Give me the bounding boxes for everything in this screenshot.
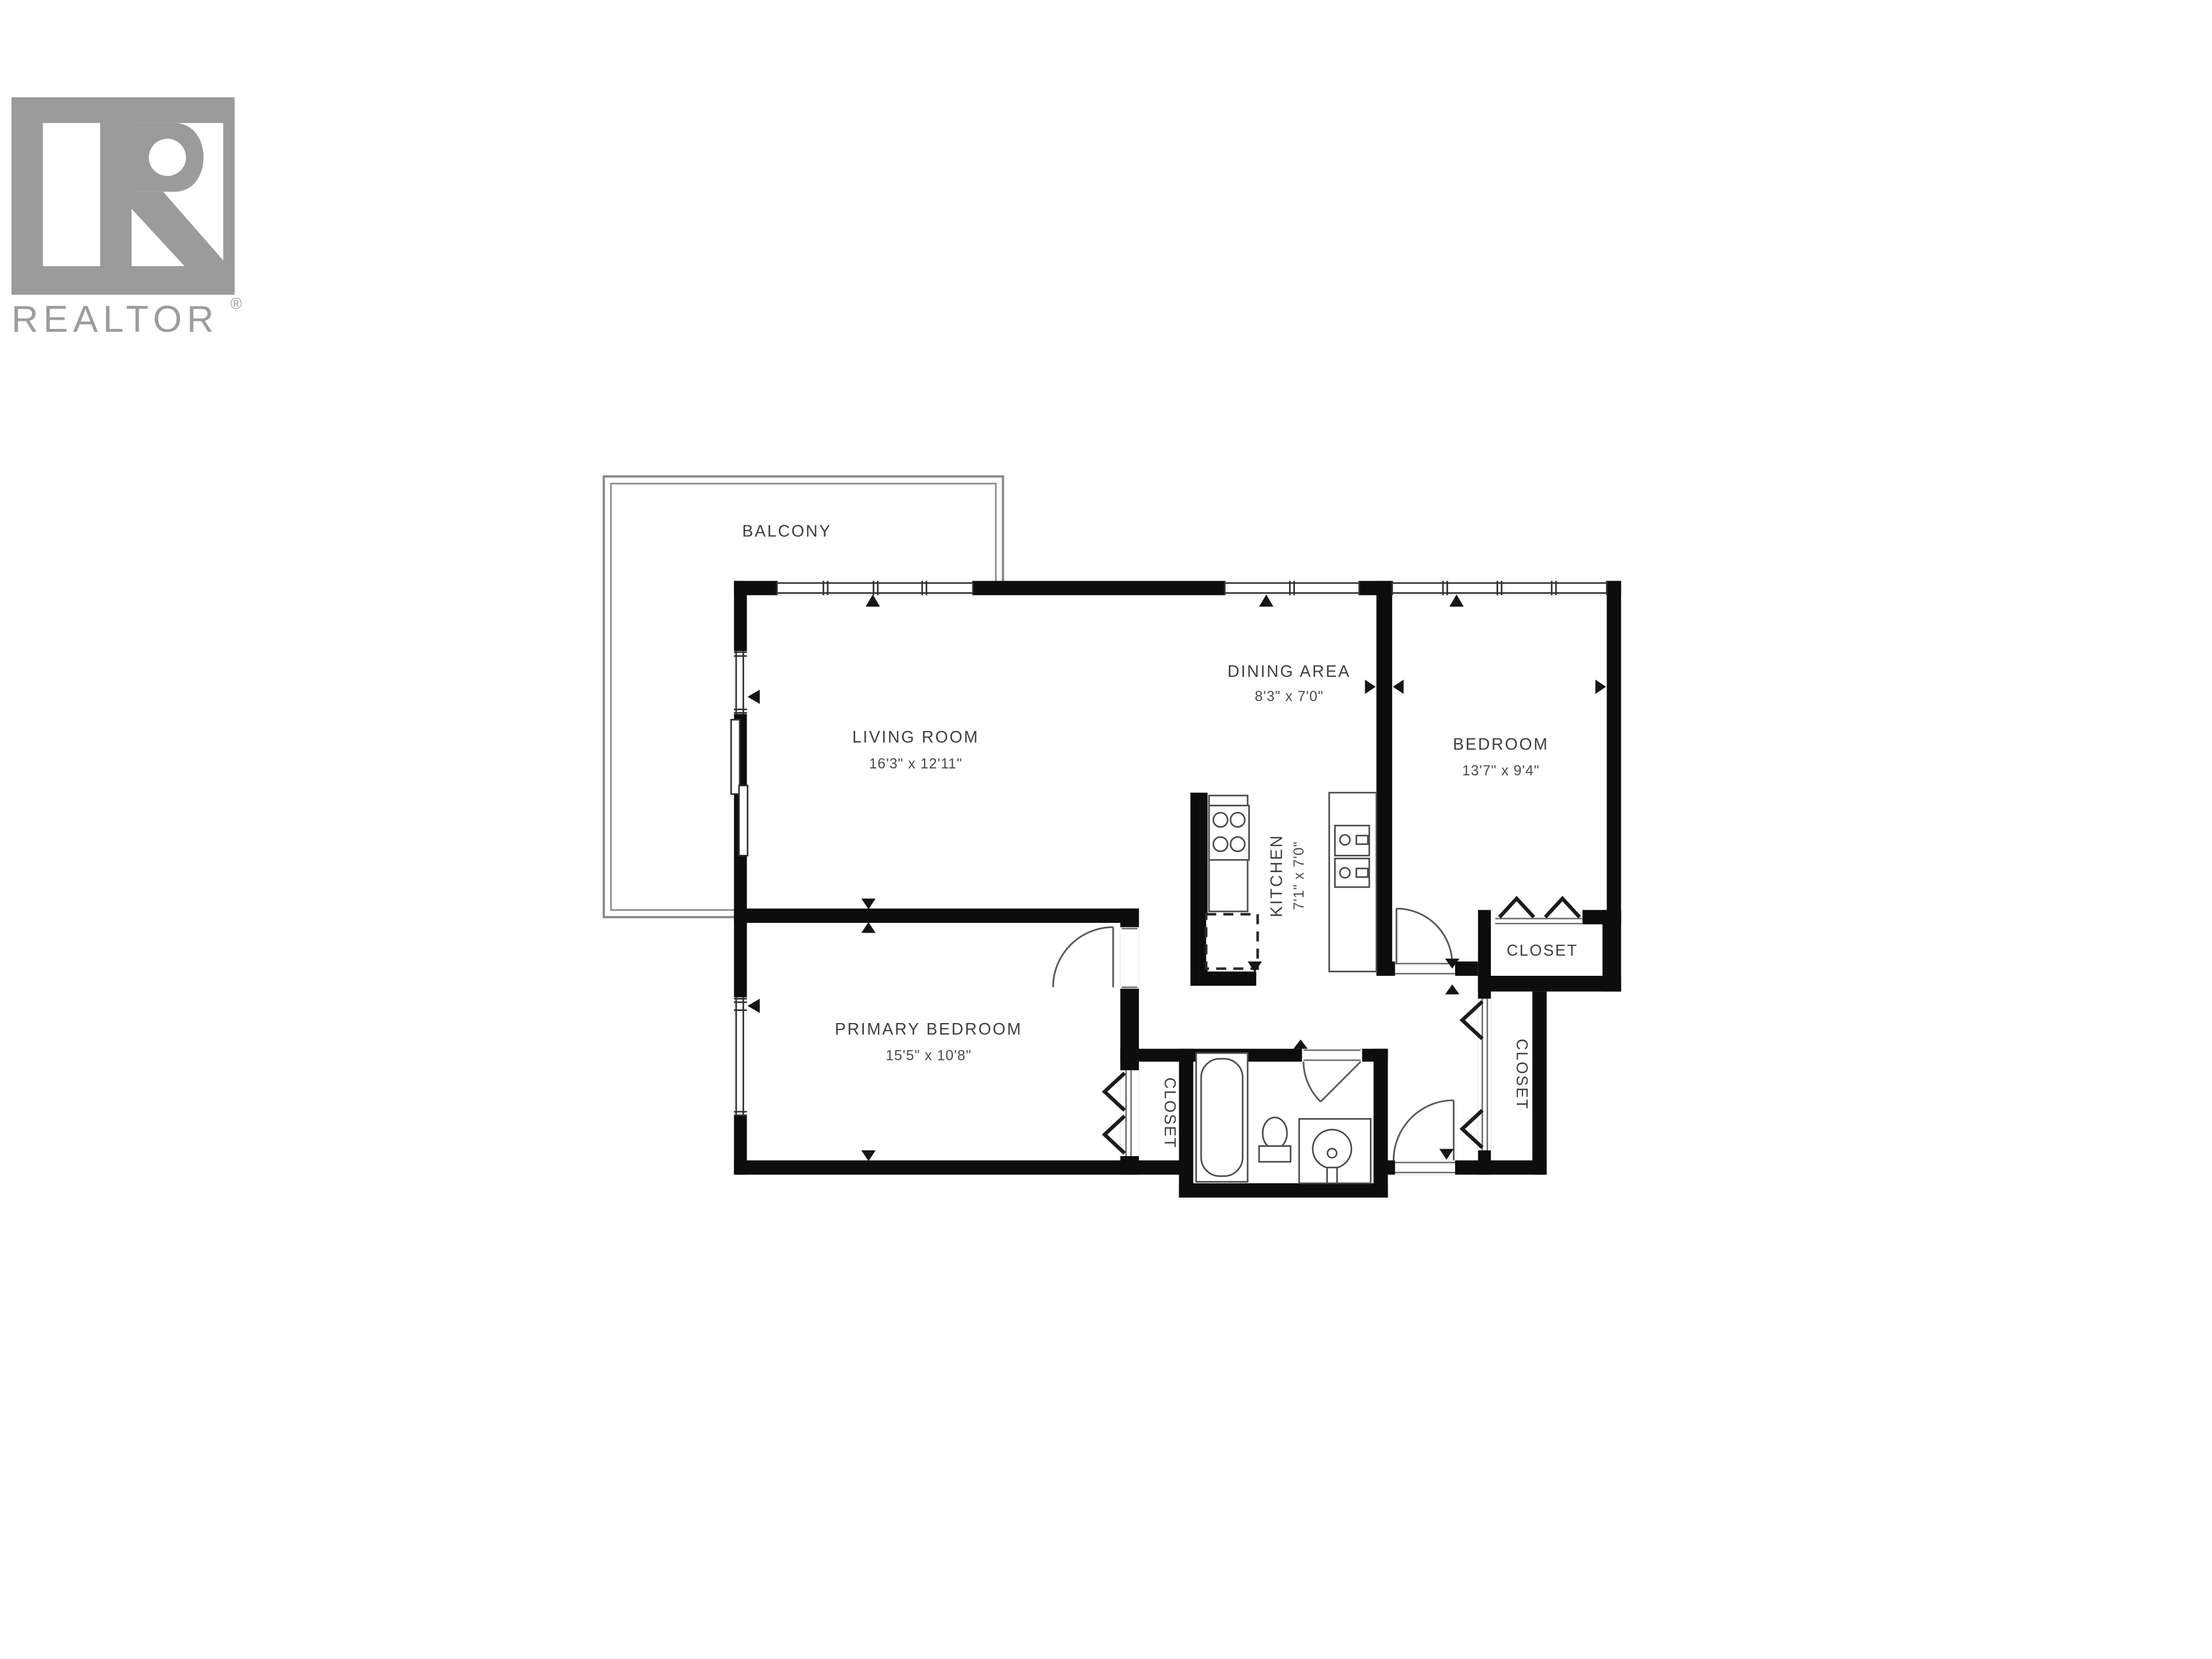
floorplan-canvas: REALTOR ® [0, 0, 2212, 1659]
balcony-outline [604, 476, 1003, 917]
window-living-left [734, 651, 747, 714]
window-bedroom-top [1392, 581, 1607, 595]
room-dims-kitchen: 7'1" x 7'0" [1291, 841, 1307, 910]
bathtub [1196, 1053, 1247, 1182]
door-bedroom [1395, 908, 1455, 974]
window-living-top [777, 581, 973, 595]
stove [1209, 805, 1249, 859]
sink-vanity [1299, 1119, 1370, 1183]
room-dims-living: 16'3" x 12'11" [869, 756, 963, 772]
room-dims-bedroom: 13'7" x 9'4" [1462, 763, 1539, 779]
room-label-dining: DINING AREA [1228, 662, 1351, 681]
room-label-kitchen: KITCHEN [1268, 834, 1286, 917]
kitchen-sink [1329, 793, 1376, 971]
closet-label-primary: CLOSET [1161, 1077, 1179, 1149]
bathroom-fixtures [1196, 1053, 1370, 1183]
room-dims-dining: 8'3" x 7'0" [1255, 689, 1323, 704]
room-label-balcony: BALCONY [742, 522, 832, 540]
window-dining-top [1225, 581, 1359, 595]
toilet [1259, 1118, 1291, 1162]
realtor-logo-text: REALTOR [12, 298, 219, 340]
room-label-bedroom: BEDROOM [1453, 736, 1549, 754]
seam-markers [748, 594, 1606, 1161]
realtor-logo: REALTOR ® [12, 97, 242, 340]
room-label-primary-bedroom: PRIMARY BEDROOM [835, 1020, 1022, 1039]
room-label-living: LIVING ROOM [852, 728, 979, 747]
refrigerator [1206, 914, 1257, 968]
closet-label-hall: CLOSET [1513, 1039, 1531, 1110]
window-primary-left [734, 997, 747, 1116]
registered-trademark-icon: ® [230, 295, 242, 313]
closet-label-bedroom: CLOSET [1506, 941, 1578, 959]
room-dims-primary-bedroom: 15'5" x 10'8" [885, 1048, 971, 1064]
